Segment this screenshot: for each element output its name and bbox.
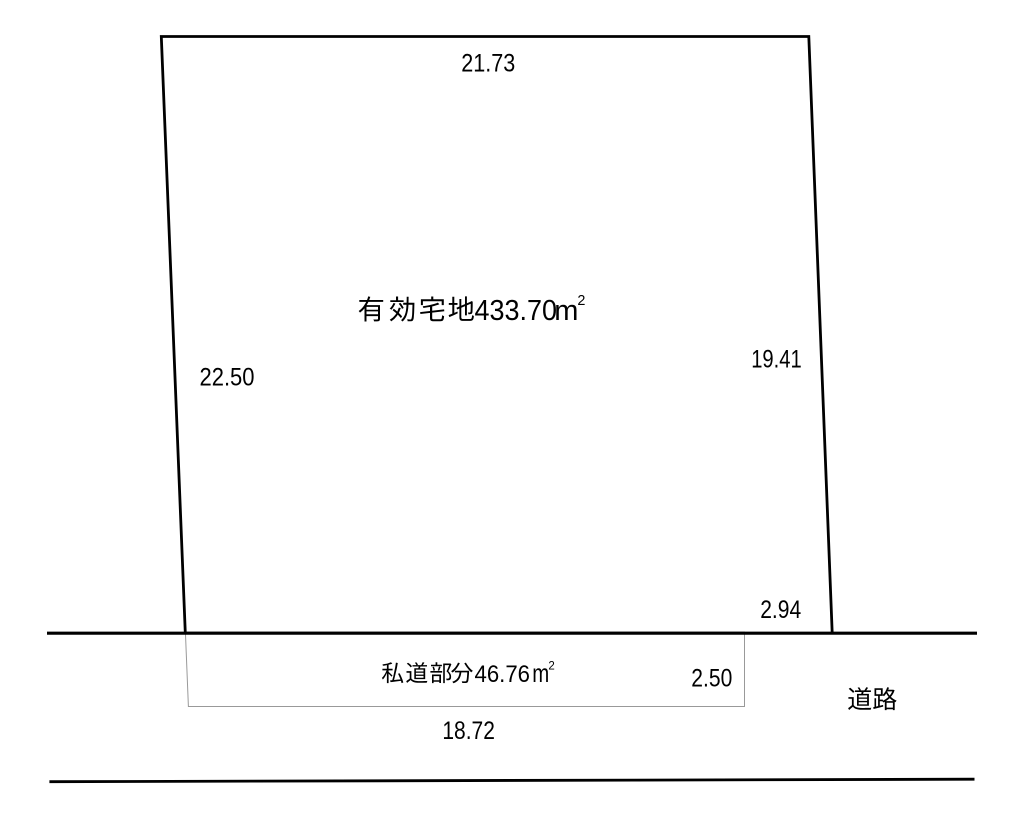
svg-text:2.50: 2.50 [691, 664, 732, 692]
svg-text:2: 2 [548, 661, 554, 673]
svg-text:22.50: 22.50 [200, 364, 255, 392]
svg-text:21.73: 21.73 [461, 50, 515, 78]
svg-text:19.41: 19.41 [751, 346, 802, 374]
svg-text:18.72: 18.72 [442, 717, 495, 745]
svg-text:2.94: 2.94 [760, 596, 801, 624]
svg-text:433.70: 433.70 [475, 295, 558, 327]
svg-text:m: m [532, 660, 549, 688]
svg-text:m: m [554, 295, 578, 327]
svg-text:2: 2 [577, 293, 585, 309]
svg-text:46.76: 46.76 [475, 661, 531, 688]
